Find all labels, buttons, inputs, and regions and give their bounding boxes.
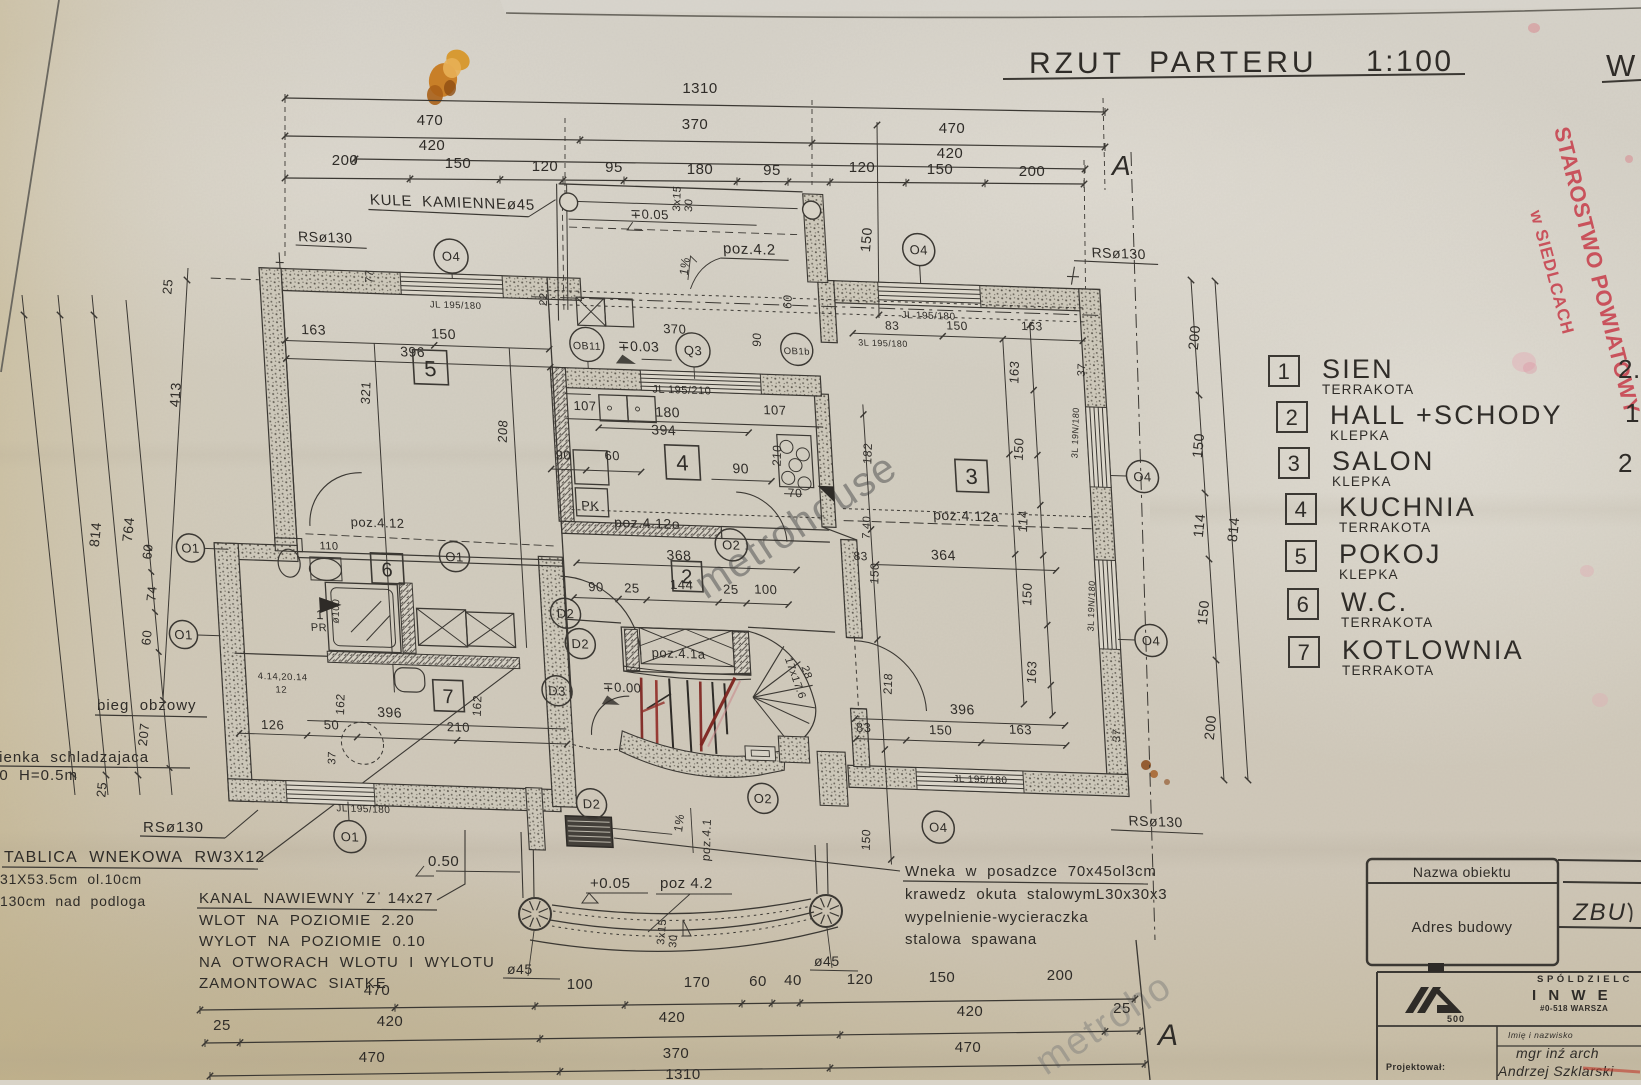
svg-text:3x15: 3x15 bbox=[671, 185, 684, 212]
svg-text:WYLOT NA POZIOMIE 0.10: WYLOT NA POZIOMIE 0.10 bbox=[199, 933, 426, 950]
svg-text:180: 180 bbox=[687, 161, 714, 178]
svg-text:I N W E: I N W E bbox=[1532, 987, 1612, 1004]
svg-text:40: 40 bbox=[784, 972, 802, 989]
svg-text:O4: O4 bbox=[909, 242, 928, 258]
svg-text:poz.4.1: poz.4.1 bbox=[699, 818, 714, 862]
svg-text:NA OTWORACH WLOTU I WYLOTU: NA OTWORACH WLOTU I WYLOTU bbox=[199, 954, 495, 971]
svg-text:O1: O1 bbox=[340, 829, 359, 845]
svg-text:O1: O1 bbox=[181, 540, 200, 556]
svg-text:25: 25 bbox=[723, 581, 739, 596]
svg-text:JL 195/180: JL 195/180 bbox=[430, 299, 482, 312]
svg-text:162: 162 bbox=[333, 693, 348, 716]
svg-text:Q3: Q3 bbox=[683, 343, 702, 359]
svg-text:150: 150 bbox=[859, 828, 874, 851]
svg-text:420: 420 bbox=[377, 1013, 404, 1030]
svg-text:W.C.: W.C. bbox=[1341, 587, 1408, 617]
svg-text:500: 500 bbox=[1447, 1014, 1465, 1024]
svg-text:5: 5 bbox=[423, 356, 437, 381]
svg-text:470: 470 bbox=[955, 1039, 982, 1056]
svg-text:50: 50 bbox=[323, 717, 339, 732]
svg-text:PK: PK bbox=[581, 498, 600, 514]
svg-text:KLEPKA: KLEPKA bbox=[1330, 428, 1390, 443]
svg-text:321: 321 bbox=[358, 380, 374, 405]
svg-text:poz.4.12a: poz.4.12a bbox=[933, 507, 1000, 525]
svg-text:120: 120 bbox=[849, 159, 876, 176]
svg-text:adzienka schladzajaca: adzienka schladzajaca bbox=[0, 749, 149, 766]
svg-text:+0.05: +0.05 bbox=[590, 875, 630, 892]
svg-text:120: 120 bbox=[847, 971, 874, 988]
svg-text:95: 95 bbox=[763, 162, 781, 179]
svg-text:210: 210 bbox=[770, 444, 785, 467]
svg-text:poz.4.12o: poz.4.12o bbox=[614, 514, 681, 532]
svg-text:0.50: 0.50 bbox=[428, 853, 459, 870]
svg-text:Andrzej Szklarski: Andrzej Szklarski bbox=[1497, 1063, 1614, 1079]
svg-text:25: 25 bbox=[1113, 1000, 1131, 1017]
svg-text:bieg obzowy: bieg obzowy bbox=[97, 697, 197, 714]
svg-text:RZUT: RZUT bbox=[1029, 47, 1125, 80]
svg-text:83: 83 bbox=[853, 549, 868, 563]
svg-text:A: A bbox=[1156, 1019, 1179, 1052]
svg-text:JL 195/210: JL 195/210 bbox=[652, 384, 712, 398]
svg-text:162: 162 bbox=[470, 694, 485, 717]
svg-text:O1: O1 bbox=[174, 627, 193, 643]
svg-text:60: 60 bbox=[139, 543, 156, 560]
svg-text:150: 150 bbox=[445, 155, 472, 172]
svg-text:413: 413 bbox=[166, 382, 184, 408]
svg-text:RSø130: RSø130 bbox=[298, 228, 353, 246]
svg-text:poz.4.2: poz.4.2 bbox=[723, 240, 777, 259]
svg-text:60: 60 bbox=[604, 448, 620, 463]
svg-text:90: 90 bbox=[732, 460, 749, 477]
svg-text:208: 208 bbox=[495, 419, 511, 444]
svg-text:150: 150 bbox=[1011, 437, 1027, 462]
svg-text:O4: O4 bbox=[929, 820, 948, 836]
svg-text:poz.4.1a: poz.4.1a bbox=[651, 645, 706, 662]
svg-text:77: 77 bbox=[364, 269, 376, 284]
svg-text:25: 25 bbox=[159, 278, 176, 295]
svg-text:3L 19N/180: 3L 19N/180 bbox=[1070, 407, 1082, 459]
svg-text:60: 60 bbox=[749, 973, 767, 990]
svg-text:364: 364 bbox=[931, 546, 957, 563]
svg-text:SALON: SALON bbox=[1332, 446, 1435, 476]
svg-text:4: 4 bbox=[675, 450, 689, 475]
svg-text:JL 195/180: JL 195/180 bbox=[953, 774, 1008, 787]
svg-text:37: 37 bbox=[1111, 728, 1123, 743]
svg-text:170: 170 bbox=[684, 974, 711, 991]
svg-text:370: 370 bbox=[663, 321, 687, 337]
svg-text:368: 368 bbox=[666, 547, 692, 564]
svg-text:470: 470 bbox=[417, 112, 444, 129]
svg-text:4: 4 bbox=[1295, 497, 1308, 522]
svg-text:420: 420 bbox=[659, 1009, 686, 1026]
svg-text:O1: O1 bbox=[445, 549, 464, 565]
svg-text:110: 110 bbox=[319, 540, 339, 553]
svg-text:30: 30 bbox=[683, 198, 695, 213]
svg-text:150: 150 bbox=[1189, 432, 1208, 458]
svg-text:6: 6 bbox=[1297, 592, 1310, 617]
svg-text:370: 370 bbox=[682, 116, 709, 133]
svg-text:25: 25 bbox=[213, 1017, 231, 1034]
svg-text:1310: 1310 bbox=[665, 1066, 700, 1080]
svg-text:150: 150 bbox=[1194, 599, 1213, 625]
svg-text:107: 107 bbox=[573, 398, 597, 414]
svg-text:114: 114 bbox=[1015, 509, 1031, 533]
svg-text:90: 90 bbox=[588, 579, 604, 594]
svg-text:100: 100 bbox=[567, 976, 594, 993]
svg-text:150: 150 bbox=[431, 325, 457, 342]
svg-text:poz.4.12: poz.4.12 bbox=[350, 514, 405, 531]
svg-text:420: 420 bbox=[419, 137, 446, 154]
svg-text:31X53.5cm ol.10cm: 31X53.5cm ol.10cm bbox=[0, 871, 142, 887]
svg-text:210: 210 bbox=[446, 719, 470, 735]
svg-text:2: 2 bbox=[1286, 405, 1299, 430]
svg-text:60: 60 bbox=[138, 629, 155, 646]
svg-text:180: 180 bbox=[655, 404, 681, 421]
svg-text:Adres budowy: Adres budowy bbox=[1411, 919, 1512, 936]
svg-text:182: 182 bbox=[860, 442, 875, 465]
svg-text:163: 163 bbox=[301, 321, 327, 338]
svg-text:470: 470 bbox=[364, 982, 391, 999]
svg-text:200: 200 bbox=[1185, 324, 1204, 350]
svg-text:370: 370 bbox=[663, 1045, 690, 1062]
svg-text:218: 218 bbox=[881, 672, 896, 695]
svg-text:90: 90 bbox=[555, 447, 571, 462]
svg-text:163: 163 bbox=[1006, 360, 1022, 385]
svg-text:126: 126 bbox=[261, 717, 285, 733]
svg-text:poz 4.2: poz 4.2 bbox=[660, 875, 713, 892]
svg-text:JL 195/180: JL 195/180 bbox=[336, 803, 391, 816]
svg-text:207: 207 bbox=[135, 722, 152, 747]
svg-text:D2: D2 bbox=[582, 796, 600, 812]
svg-text:#0-518 WARSZA: #0-518 WARSZA bbox=[1540, 1004, 1608, 1013]
svg-text:83: 83 bbox=[885, 318, 900, 332]
svg-text:90: 90 bbox=[750, 332, 764, 348]
svg-text:396: 396 bbox=[377, 704, 403, 721]
svg-text:130cm nad podloga: 130cm nad podloga bbox=[0, 893, 146, 909]
svg-text:60: 60 bbox=[780, 294, 794, 310]
svg-text:114: 114 bbox=[1190, 513, 1208, 538]
svg-text:D2: D2 bbox=[571, 636, 589, 652]
svg-text:OB11: OB11 bbox=[573, 340, 602, 353]
svg-text:PARTERU: PARTERU bbox=[1149, 46, 1318, 79]
svg-text:KLEPKA: KLEPKA bbox=[1339, 567, 1399, 582]
svg-text:200: 200 bbox=[332, 152, 359, 169]
svg-text:OB1b: OB1b bbox=[783, 346, 810, 358]
svg-text:Projektował:: Projektował: bbox=[1386, 1062, 1446, 1072]
svg-text:37: 37 bbox=[326, 751, 338, 766]
svg-text:200: 200 bbox=[1019, 163, 1046, 180]
svg-text:7: 7 bbox=[442, 686, 455, 708]
svg-text:S P Ó L D Z I E L C: S P Ó L D Z I E L C bbox=[1537, 973, 1630, 985]
svg-text:420: 420 bbox=[937, 145, 964, 162]
svg-text:TERRAKOTA: TERRAKOTA bbox=[1342, 663, 1434, 678]
svg-text:Nazwa obiektu: Nazwa obiektu bbox=[1413, 864, 1511, 880]
svg-text:25: 25 bbox=[624, 580, 640, 595]
svg-text:∓0.05: ∓0.05 bbox=[630, 206, 670, 222]
svg-text:00 H=0.5m: 00 H=0.5m bbox=[0, 767, 78, 784]
svg-text:1: 1 bbox=[316, 607, 325, 622]
svg-text:D3: D3 bbox=[548, 683, 566, 699]
svg-text:RSø130: RSø130 bbox=[143, 819, 204, 836]
svg-text:krawedz okuta stalowymL30x30: krawedz okuta stalowymL30x30x3 bbox=[905, 886, 1167, 903]
svg-text:KOTLOWNIA: KOTLOWNIA bbox=[1342, 635, 1524, 665]
svg-text:470: 470 bbox=[359, 1049, 386, 1066]
svg-text:3L 195/180: 3L 195/180 bbox=[858, 337, 908, 349]
svg-text:mgr inź arch: mgr inź arch bbox=[1516, 1045, 1599, 1061]
svg-text:70: 70 bbox=[788, 486, 803, 500]
svg-text:Imię i nazwisko: Imię i nazwisko bbox=[1508, 1030, 1573, 1040]
svg-text:TERRAKOTA: TERRAKOTA bbox=[1339, 520, 1431, 535]
svg-text:KLEPKA: KLEPKA bbox=[1332, 474, 1392, 489]
svg-text:1: 1 bbox=[1278, 359, 1291, 384]
svg-text:120: 120 bbox=[532, 158, 559, 175]
svg-text:WLOT NA POZIOMIE 2.20: WLOT NA POZIOMIE 2.20 bbox=[199, 912, 415, 929]
svg-text:1%: 1% bbox=[671, 812, 687, 833]
svg-text:764: 764 bbox=[119, 516, 138, 542]
svg-text:7: 7 bbox=[1298, 640, 1311, 665]
svg-text:O4: O4 bbox=[441, 249, 460, 265]
svg-text:wypelnienie-wycieraczka: wypelnienie-wycieraczka bbox=[904, 909, 1088, 926]
svg-text:POKOJ: POKOJ bbox=[1339, 539, 1442, 569]
svg-text:O4: O4 bbox=[1141, 633, 1160, 649]
svg-text:814: 814 bbox=[1224, 516, 1243, 542]
svg-text:74: 74 bbox=[143, 585, 160, 602]
svg-text:3: 3 bbox=[965, 464, 979, 489]
svg-text:150: 150 bbox=[927, 161, 954, 178]
svg-text:ZBU: ZBU bbox=[1572, 899, 1627, 926]
svg-text:D2: D2 bbox=[556, 606, 574, 622]
svg-text:stalowa spawana: stalowa spawana bbox=[905, 931, 1037, 948]
svg-text:25: 25 bbox=[93, 781, 110, 798]
svg-text:150: 150 bbox=[929, 969, 956, 986]
svg-text:SIEN: SIEN bbox=[1322, 354, 1394, 384]
svg-text:163: 163 bbox=[1021, 319, 1043, 334]
svg-text:144: 144 bbox=[670, 577, 694, 593]
svg-text:1: 1 bbox=[1625, 398, 1640, 428]
svg-text:107: 107 bbox=[763, 402, 787, 418]
svg-text:TERRAKOTA: TERRAKOTA bbox=[1322, 382, 1414, 397]
svg-text:W: W bbox=[1606, 48, 1636, 83]
svg-text:4.14,20.14: 4.14,20.14 bbox=[257, 671, 308, 684]
svg-text:100: 100 bbox=[754, 582, 778, 598]
svg-text:1:100: 1:100 bbox=[1366, 45, 1454, 78]
svg-text:420: 420 bbox=[957, 1003, 984, 1020]
svg-text:3L 19N/180: 3L 19N/180 bbox=[1086, 580, 1098, 632]
svg-text:5: 5 bbox=[1295, 544, 1308, 569]
svg-text:37: 37 bbox=[1076, 363, 1088, 378]
svg-text:470: 470 bbox=[939, 120, 966, 137]
svg-text:150: 150 bbox=[929, 722, 953, 738]
svg-text:RSø130: RSø130 bbox=[1128, 812, 1183, 830]
svg-text:ø45: ø45 bbox=[814, 953, 840, 969]
svg-text:ZAMONTOWAC SIATKE: ZAMONTOWAC SIATKE bbox=[199, 975, 387, 992]
svg-text:Wneka w posadzce 70x45ol3cm: Wneka w posadzce 70x45ol3cm bbox=[905, 863, 1157, 880]
svg-text:O2: O2 bbox=[722, 537, 741, 553]
svg-text:RSø130: RSø130 bbox=[1091, 244, 1146, 262]
svg-text:3: 3 bbox=[1288, 451, 1301, 476]
svg-text:6: 6 bbox=[381, 559, 394, 581]
svg-text:150: 150 bbox=[946, 318, 968, 333]
svg-text:2.: 2. bbox=[1618, 354, 1641, 384]
svg-text:30: 30 bbox=[667, 934, 680, 948]
svg-text:396: 396 bbox=[949, 701, 975, 718]
svg-text:814: 814 bbox=[86, 521, 105, 547]
svg-text:O4: O4 bbox=[1133, 469, 1152, 485]
svg-text:12: 12 bbox=[275, 684, 287, 695]
svg-text:∓0.03: ∓0.03 bbox=[617, 337, 659, 354]
svg-text:150: 150 bbox=[867, 562, 882, 585]
svg-text:KUCHNIA: KUCHNIA bbox=[1339, 492, 1476, 522]
svg-text:∓0.00: ∓0.00 bbox=[602, 679, 642, 695]
svg-text:KANAL NAWIEWNY ˈZˈ 14x27: KANAL NAWIEWNY ˈZˈ 14x27 bbox=[199, 890, 434, 907]
svg-text:163: 163 bbox=[1024, 660, 1040, 685]
svg-text:83: 83 bbox=[855, 720, 871, 735]
svg-text:HALL +SCHODY: HALL +SCHODY bbox=[1330, 400, 1563, 430]
svg-text:150: 150 bbox=[857, 226, 875, 252]
svg-text:7.40: 7.40 bbox=[861, 515, 874, 540]
svg-text:O2: O2 bbox=[753, 791, 772, 807]
svg-text:150: 150 bbox=[1019, 582, 1035, 607]
svg-text:95: 95 bbox=[605, 159, 623, 176]
svg-text:200: 200 bbox=[1047, 967, 1074, 984]
svg-text:2: 2 bbox=[1618, 448, 1633, 478]
svg-text:TERRAKOTA: TERRAKOTA bbox=[1341, 615, 1433, 630]
svg-text:TABLICA WNEKOWA RW3X12: TABLICA WNEKOWA RW3X12 bbox=[4, 849, 265, 866]
svg-text:A: A bbox=[1110, 150, 1131, 181]
svg-text:PR: PR bbox=[311, 622, 328, 635]
svg-text:200: 200 bbox=[1201, 714, 1220, 740]
svg-text:1310: 1310 bbox=[682, 80, 717, 97]
